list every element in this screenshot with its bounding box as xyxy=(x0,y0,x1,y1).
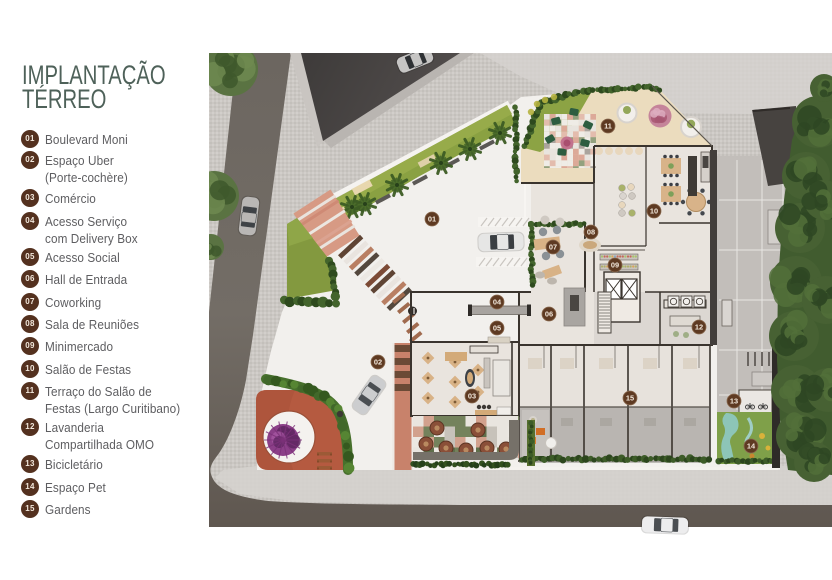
svg-text:13: 13 xyxy=(730,397,738,406)
svg-text:05: 05 xyxy=(493,324,501,333)
svg-text:14: 14 xyxy=(747,442,756,451)
svg-text:09: 09 xyxy=(611,261,619,270)
svg-text:01: 01 xyxy=(428,215,436,224)
svg-text:15: 15 xyxy=(626,394,634,403)
svg-text:08: 08 xyxy=(587,228,595,237)
svg-text:02: 02 xyxy=(374,358,382,367)
svg-text:12: 12 xyxy=(695,323,703,332)
svg-text:04: 04 xyxy=(493,298,502,307)
svg-text:07: 07 xyxy=(549,243,557,252)
svg-text:11: 11 xyxy=(604,122,612,131)
svg-text:06: 06 xyxy=(545,310,553,319)
svg-text:10: 10 xyxy=(650,207,658,216)
svg-text:03: 03 xyxy=(468,392,476,401)
